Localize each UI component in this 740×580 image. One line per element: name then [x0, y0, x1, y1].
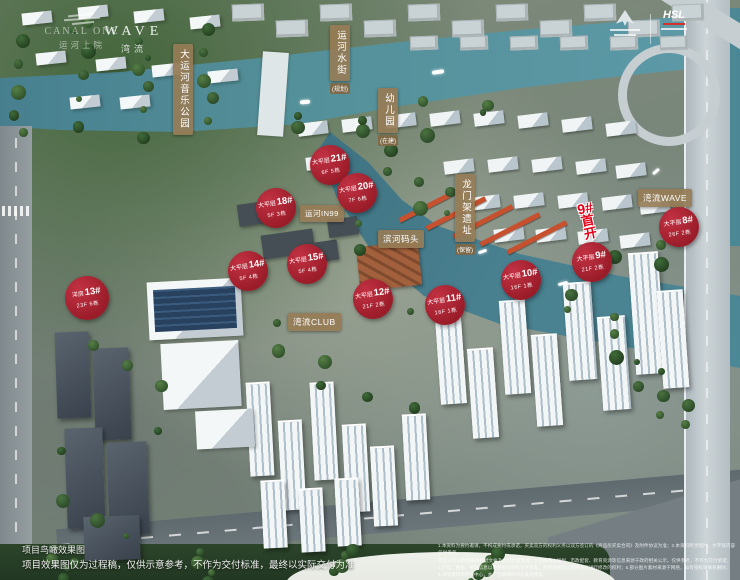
label-text: 湾流CLUB	[293, 317, 336, 327]
building-block	[443, 158, 474, 175]
badge-number: 21#	[330, 153, 347, 165]
tree	[316, 381, 326, 391]
tree	[76, 96, 82, 102]
building-badge-13: 洋房13# 23F 6栋	[62, 273, 112, 323]
label-subtext: (规划)	[330, 83, 350, 94]
badge-number: 12#	[373, 287, 390, 299]
badge-info: 16F 1栋	[510, 280, 533, 291]
badge-number: 8#	[682, 215, 694, 226]
tree	[610, 313, 619, 322]
tree	[418, 96, 429, 107]
tree	[202, 23, 215, 36]
tree	[355, 220, 362, 227]
tree	[73, 121, 84, 132]
badge-prefix: 大平层	[258, 201, 277, 209]
badge-info: 5F 3栋	[267, 208, 287, 219]
badge-number: 13#	[84, 286, 101, 298]
tree	[197, 74, 211, 88]
tree	[656, 411, 664, 419]
building-block	[320, 3, 353, 21]
tree	[445, 187, 456, 198]
building-block	[435, 317, 467, 405]
label-text: 滨河码头	[383, 234, 419, 244]
tree	[145, 55, 151, 61]
building-block	[467, 347, 499, 439]
tree	[346, 544, 359, 557]
area-label-canal-water-street: 运河水街 (规划)	[330, 25, 350, 94]
building-block	[408, 3, 441, 21]
logo-caption-bar	[614, 34, 636, 36]
brand2-cn-text: 湾流	[100, 42, 168, 55]
building-block	[153, 286, 237, 332]
legal-line: 6.详情请详询营销中心，本广告解释权归开发商所有。	[438, 571, 736, 578]
tree	[409, 402, 420, 413]
label-subtext: (保留)	[455, 244, 475, 255]
bird-mark-icon	[64, 14, 100, 24]
tree	[199, 48, 208, 57]
building-block	[575, 158, 606, 175]
tree	[58, 573, 69, 580]
area-label-gantry-relic: 龙门架遗址 (保留)	[455, 174, 475, 255]
badge-prefix: 洋房	[72, 292, 85, 300]
tree	[78, 70, 89, 81]
tree	[11, 85, 26, 100]
legal-line: 4.户型、楼栋、楼层信息以最终规划审批文件为准，开发商保留对宣传资料进行修改的权…	[438, 564, 736, 571]
badge-prefix: 大平层	[663, 220, 682, 228]
badge-number: 18#	[276, 196, 293, 208]
building-block	[370, 445, 398, 526]
developer-logo-hsl: HSL	[661, 10, 687, 30]
building-block	[496, 3, 529, 21]
building-block	[364, 19, 397, 37]
building-block	[95, 56, 126, 71]
building-block	[540, 19, 573, 37]
building-block	[517, 112, 548, 129]
tree	[657, 390, 669, 402]
tree	[154, 427, 162, 435]
logo-divider	[650, 14, 651, 44]
building-block	[619, 232, 650, 249]
tree	[137, 132, 149, 144]
aerial-rendering: CANAL ONE 运河上院 WAVE 湾流 HSL 大运河音乐公园 运河水街 …	[0, 0, 740, 580]
logo-caption-bar	[610, 29, 640, 31]
label-text: 大运河音乐公园	[173, 44, 193, 135]
label-subtext: (在建)	[378, 135, 398, 146]
tree	[14, 59, 24, 69]
badge-prefix: 大平层	[230, 264, 249, 272]
badge-number: 20#	[357, 181, 374, 193]
building-block	[276, 19, 309, 37]
badge-prefix: 大平层	[427, 298, 446, 306]
tree	[19, 128, 28, 137]
building-block	[260, 479, 288, 548]
building-block	[510, 36, 538, 51]
image-disclaimer-caption: 项目效果图仅为过程稿，仅供示意参考，不作为交付标准，最终以实际交付为准	[22, 557, 355, 571]
tree	[610, 329, 620, 339]
tree	[482, 100, 493, 111]
label-text: 湾流WAVE	[643, 193, 687, 203]
badge-number: 15#	[307, 252, 324, 264]
area-label-kindergarten: 幼儿园 (在建)	[378, 88, 398, 146]
building-block	[561, 116, 592, 133]
building-block	[232, 3, 265, 21]
tree	[362, 392, 373, 403]
badge-prefix: 大平层	[503, 273, 522, 281]
building-block	[410, 36, 438, 51]
tree	[407, 308, 414, 315]
boat	[652, 168, 660, 175]
tree	[420, 128, 435, 143]
badge-prefix: 大平层	[289, 257, 308, 265]
area-label-canal-music-park: 大运河音乐公园	[173, 44, 193, 135]
label-text: 龙门架遗址	[455, 174, 475, 242]
building-block	[605, 120, 636, 137]
area-label-canal-in99: 运河IN99	[300, 205, 344, 222]
badge-prefix: 大平层	[576, 255, 595, 263]
label-text: 运河水街	[330, 25, 350, 81]
badge-info: 16F 1栋	[434, 305, 457, 316]
building-block	[35, 50, 66, 65]
tree	[358, 116, 367, 125]
tree	[565, 289, 577, 301]
badge-prefix: 大平层	[339, 186, 358, 194]
label-text: 幼儿园	[378, 88, 398, 133]
zebra-crossing	[2, 206, 30, 216]
badge-prefix: 大平层	[312, 158, 331, 166]
tree	[272, 344, 285, 357]
tree	[90, 513, 105, 528]
tree	[383, 167, 392, 176]
badge-number: 14#	[248, 259, 265, 271]
badge-number: 10#	[521, 268, 538, 280]
tree	[384, 144, 397, 157]
image-title-caption: 项目鸟瞰效果图	[22, 543, 85, 556]
area-label-wave-club: 湾流CLUB	[288, 313, 341, 331]
building-block	[460, 36, 488, 51]
badge-info: 23F 6栋	[76, 298, 99, 309]
tree	[654, 257, 669, 272]
tree	[9, 110, 20, 121]
legal-disclaimer: 1.本资料为要约邀请，不构成要约或承诺，买卖双方的权利义务以双方签订的《商品房买…	[438, 542, 736, 579]
hsl-logo-text: HSL	[661, 10, 687, 21]
tree	[207, 92, 219, 104]
tree	[273, 319, 281, 327]
tree	[155, 380, 167, 392]
tree	[354, 244, 366, 256]
badge-prefix: 大平层	[355, 292, 374, 300]
area-label-wave-waterfront: 湾流WAVE	[638, 189, 692, 207]
tree	[291, 121, 304, 134]
badge-number: 9#	[595, 250, 607, 261]
building-block	[560, 36, 588, 51]
tree	[56, 494, 70, 508]
tree	[414, 177, 424, 187]
building-block	[429, 110, 460, 127]
tree	[122, 360, 133, 371]
tree	[413, 201, 428, 216]
building-block	[601, 194, 632, 211]
building-block	[195, 409, 255, 450]
legal-line: 1.本资料为要约邀请，不构成要约或承诺，买卖双方的权利义务以双方签订的《商品房买…	[438, 542, 736, 557]
badge-info: 21F 2栋	[581, 262, 604, 273]
launch-char: 开	[582, 226, 600, 241]
badge-info: 5F 4栋	[298, 264, 318, 275]
building-block	[55, 331, 92, 418]
developer-logo-emblem	[610, 10, 640, 36]
brand-logo-wave: WAVE 湾流	[100, 24, 168, 55]
tree	[294, 112, 302, 120]
badge-info: 21F 2栋	[362, 299, 385, 310]
building-block	[309, 381, 338, 480]
building-block	[531, 333, 563, 427]
badge-info: 26F 2栋	[668, 227, 691, 238]
tree	[633, 381, 644, 392]
building-block	[133, 8, 164, 23]
tree	[356, 124, 370, 138]
building-block	[160, 340, 241, 410]
building-block	[513, 192, 544, 209]
building-block	[531, 156, 562, 173]
tree	[318, 355, 332, 369]
badge-number: 11#	[445, 293, 462, 305]
badge-info: 6F 5栋	[321, 165, 341, 176]
legal-line: 实际交付以政府最终审批文件及合同约定为准；3.项目周边规划、市政配套、教育资源等…	[438, 557, 736, 564]
tree	[143, 81, 154, 92]
tree	[196, 548, 204, 556]
hsl-accent-bar	[663, 23, 685, 25]
brand2-en-text: WAVE	[100, 24, 168, 40]
west-road	[0, 126, 32, 580]
badge-info: 5F 4栋	[239, 271, 259, 282]
building-block	[402, 413, 430, 500]
building-block	[473, 110, 504, 127]
logo-caption-bar	[661, 28, 687, 30]
sail-emblem-icon	[616, 10, 634, 26]
tree	[88, 340, 99, 351]
tree	[16, 34, 30, 48]
area-label-riverside-wharf: 滨河码头	[378, 230, 424, 248]
building-block	[487, 156, 518, 173]
building-block	[334, 477, 362, 546]
tree	[681, 420, 690, 429]
badge-info: 7F 6栋	[348, 193, 368, 204]
label-text: 运河IN99	[305, 209, 339, 218]
developer-logos: HSL	[610, 10, 687, 44]
building-block	[615, 162, 646, 179]
building-block	[298, 487, 325, 552]
